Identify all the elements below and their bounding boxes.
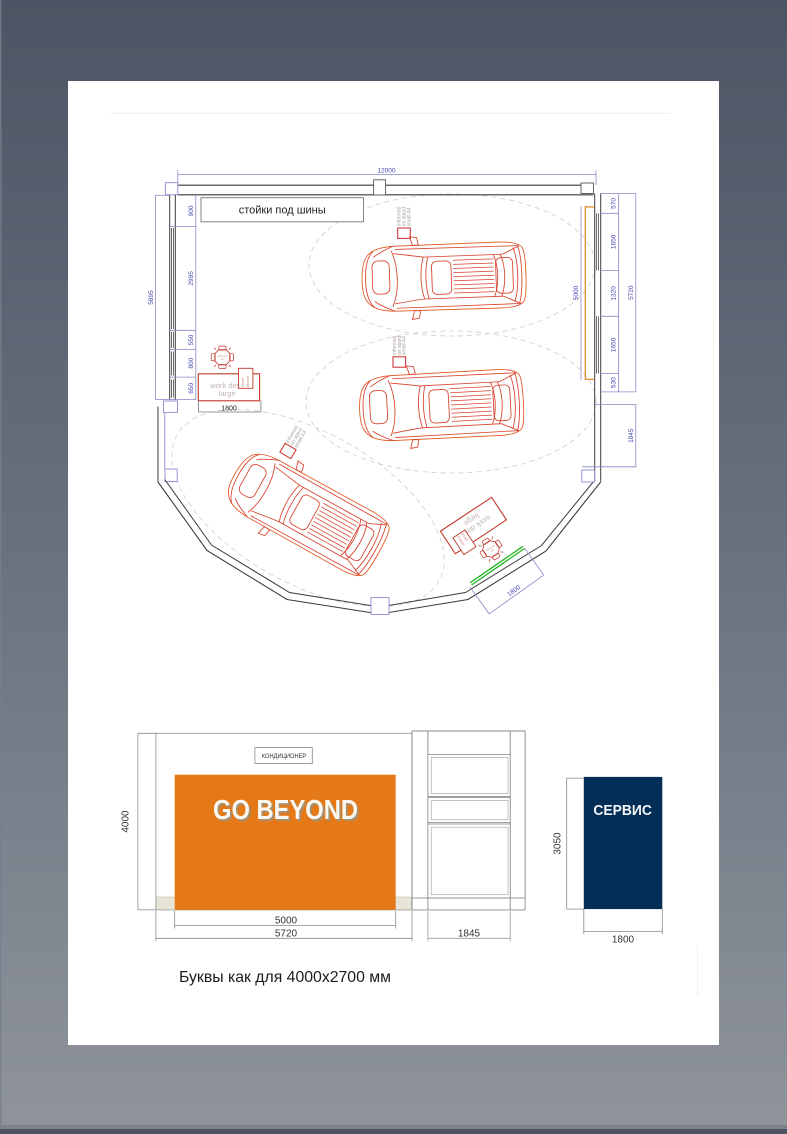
svg-text:550: 550 xyxy=(188,334,195,345)
svg-text:1650: 1650 xyxy=(611,234,618,249)
svg-text:5895: 5895 xyxy=(148,290,155,305)
svg-text:900: 900 xyxy=(188,205,195,216)
svg-text:стойки под шины: стойки под шины xyxy=(239,205,326,217)
svg-text:650: 650 xyxy=(188,382,195,393)
svg-text:1845: 1845 xyxy=(628,428,635,443)
svg-text:1845: 1845 xyxy=(458,928,481,939)
svg-text:800: 800 xyxy=(188,357,195,368)
svg-text:5000: 5000 xyxy=(573,285,580,300)
svg-text:1800: 1800 xyxy=(612,935,635,946)
svg-text:5720: 5720 xyxy=(275,928,298,939)
svg-text:5720: 5720 xyxy=(628,285,635,300)
svg-text:2995: 2995 xyxy=(188,271,195,286)
svg-text:КОНДИЦИОНЕР: КОНДИЦИОНЕР xyxy=(262,753,307,760)
svg-text:570: 570 xyxy=(611,198,618,209)
svg-text:12000: 12000 xyxy=(377,168,395,175)
svg-text:1800: 1800 xyxy=(221,405,237,412)
svg-text:1320: 1320 xyxy=(611,286,618,301)
svg-text:1650: 1650 xyxy=(611,337,618,352)
svg-text:3050: 3050 xyxy=(553,832,564,855)
svg-text:5000: 5000 xyxy=(275,916,298,927)
svg-text:Буквы как для 4000х2700 мм: Буквы как для 4000х2700 мм xyxy=(179,969,391,986)
svg-text:4000: 4000 xyxy=(121,810,132,833)
svg-text:СЕРВИС: СЕРВИС xyxy=(593,803,652,819)
svg-text:530: 530 xyxy=(611,377,618,388)
svg-text:GO BEYOND: GO BEYOND xyxy=(213,794,358,825)
